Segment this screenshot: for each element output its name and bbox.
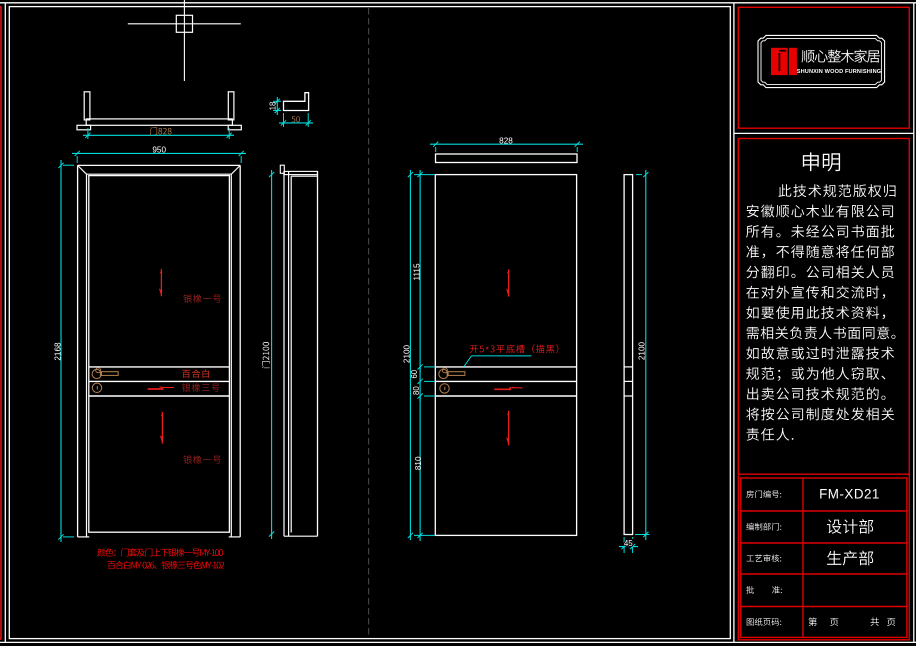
svg-text:2168: 2168: [53, 342, 62, 361]
svg-text:60: 60: [410, 369, 419, 378]
svg-text:2100: 2100: [403, 344, 412, 363]
svg-text:1115: 1115: [412, 263, 421, 280]
svg-text:FM-XD21: FM-XD21: [819, 487, 880, 502]
svg-text:950: 950: [152, 146, 166, 155]
svg-text:828: 828: [499, 137, 513, 146]
svg-text:18: 18: [268, 102, 277, 111]
svg-text:2100: 2100: [637, 341, 646, 360]
svg-text:810: 810: [414, 456, 423, 470]
svg-text:SHUNXIN WOOD FURNISHING: SHUNXIN WOOD FURNISHING: [797, 69, 882, 75]
svg-text:45: 45: [624, 539, 633, 548]
svg-text:80: 80: [412, 386, 421, 395]
